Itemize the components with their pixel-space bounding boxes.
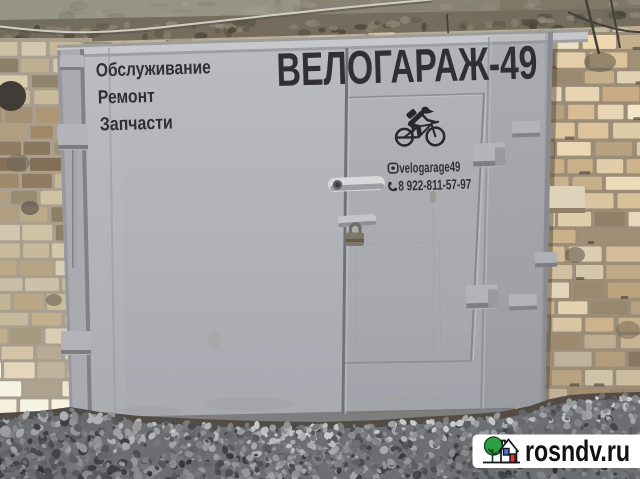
svg-text:rosndv.ru: rosndv.ru (525, 435, 630, 468)
